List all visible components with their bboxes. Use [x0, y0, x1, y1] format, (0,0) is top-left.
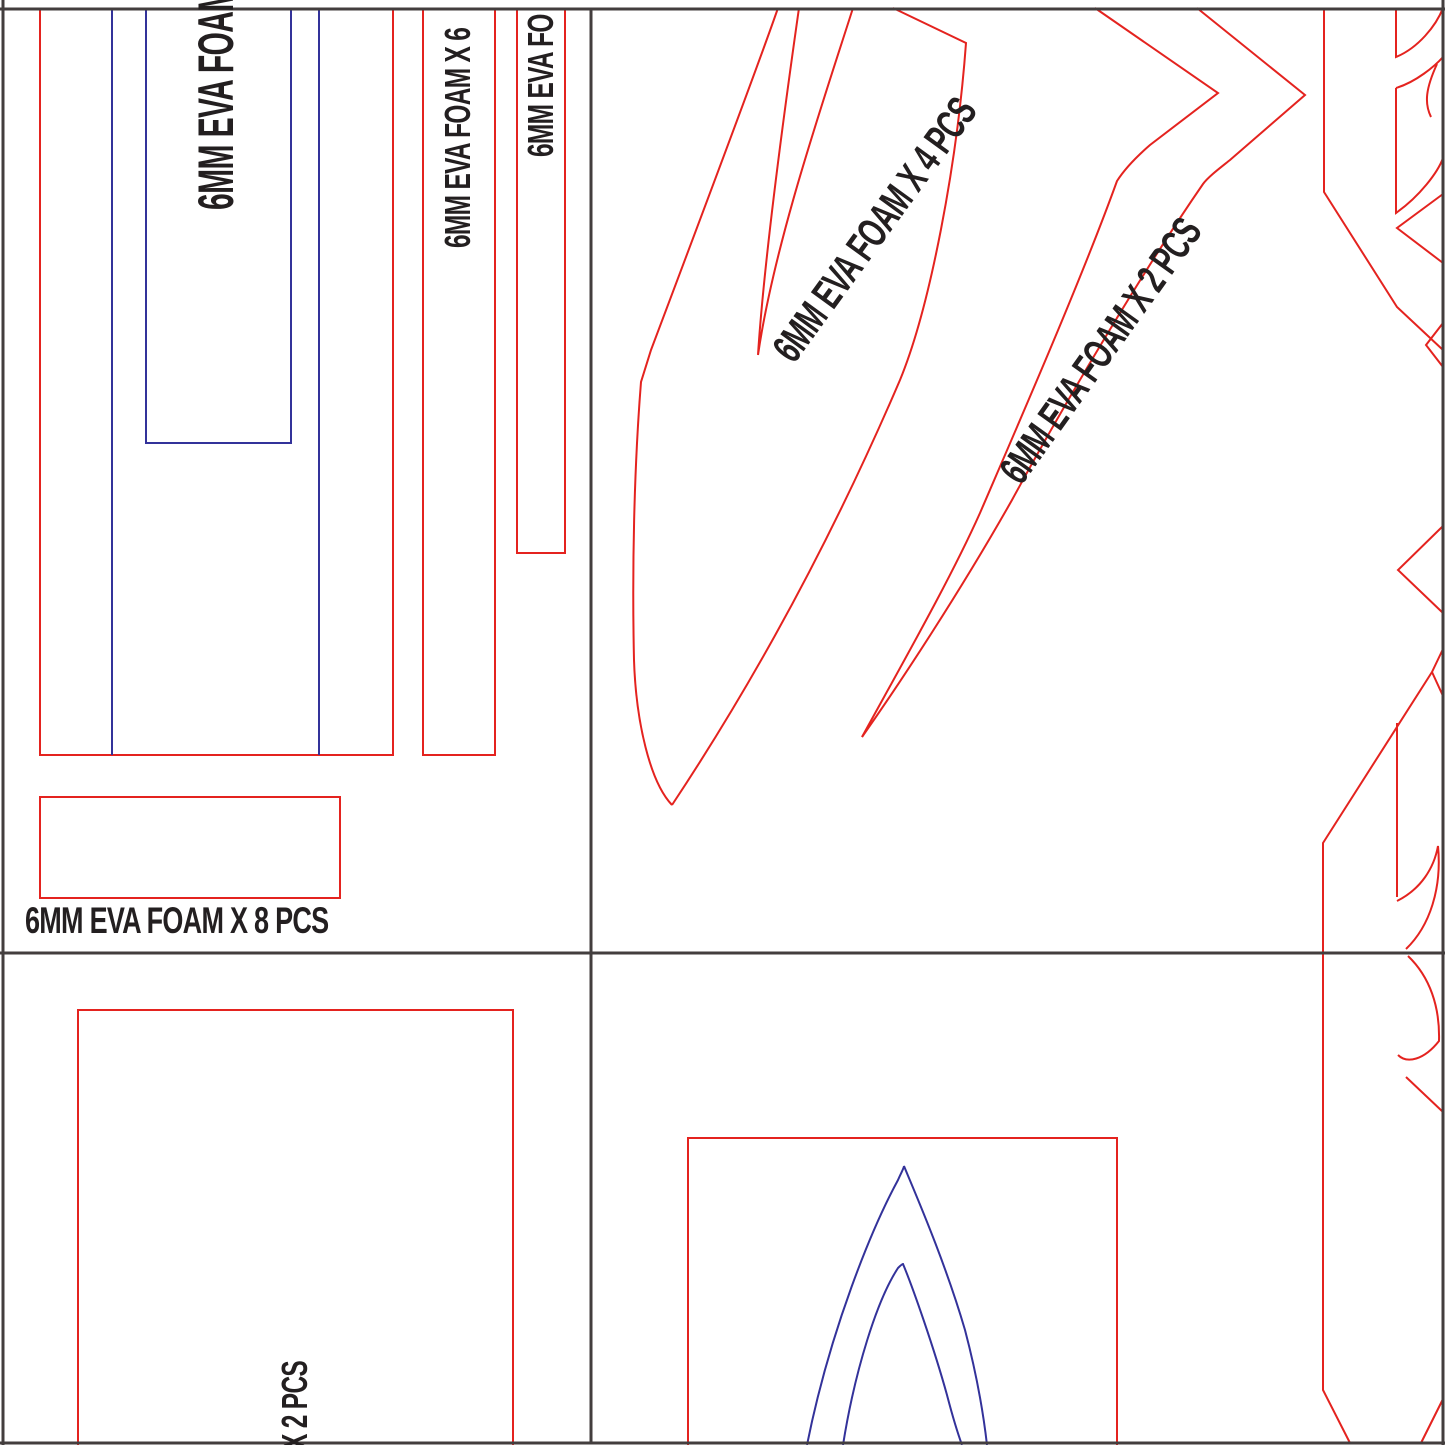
piece-outline-wave1	[1396, 8, 1443, 57]
piece-outline-chevron-c	[1398, 526, 1443, 613]
piece-outline-bottom-right-rect	[688, 1138, 1117, 1445]
piece-outline-band2-inner	[862, 8, 1218, 737]
mark-flame-inner	[843, 1264, 962, 1445]
pattern-labels: 6MM EVA FOAM 6MM EVA FOAM X 6 6MM EVA FO…	[25, 0, 1211, 1445]
piece-outline-diag2	[1421, 1399, 1443, 1443]
piece-outline-chevron-a	[1397, 194, 1443, 263]
piece-outline-small-rect	[40, 797, 340, 898]
piece-outline-claw1	[1397, 846, 1439, 949]
label-strip-x6: 6MM EVA FOAM X 6	[437, 28, 478, 248]
mark-flame-outer	[807, 1166, 987, 1445]
label-tall-strip: 6MM EVA FOAM	[188, 0, 244, 210]
label-band-x4: 6MM EVA FOAM X 4 PCS	[763, 89, 985, 370]
pattern-sheet: 6MM EVA FOAM 6MM EVA FOAM X 6 6MM EVA FO…	[0, 0, 1445, 1445]
label-sheet1-total: 6MM EVA FOAM X 8 PCS	[25, 900, 329, 941]
label-band-x2: 6MM EVA FOAM X 2 PCS	[990, 209, 1210, 492]
label-sheet3-partial: X 2 PCS	[274, 1361, 315, 1445]
page-borders	[0, 0, 1445, 1445]
label-strip-fo: 6MM EVA FO	[520, 14, 561, 157]
piece-outline-right-strip	[1324, 8, 1443, 350]
piece-outline-wave2	[1396, 57, 1443, 213]
piece-outline-diag1	[1406, 1077, 1443, 1112]
red-cut-lines	[40, 8, 1443, 1445]
piece-outline-chevron-b	[1426, 323, 1443, 367]
piece-outline-band4-outer	[633, 8, 778, 805]
piece-outline-claw2	[1398, 956, 1439, 1060]
piece-outline-peak	[1323, 649, 1443, 1443]
pattern-canvas: 6MM EVA FOAM 6MM EVA FOAM X 6 6MM EVA FO…	[0, 0, 1445, 1445]
